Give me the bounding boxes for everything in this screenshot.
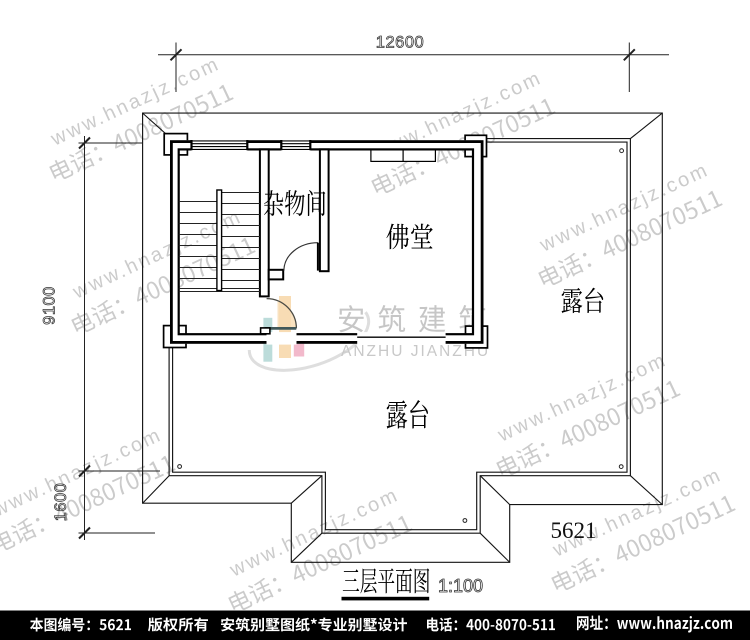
svg-text:5621: 5621	[551, 518, 597, 543]
svg-text:1600: 1600	[52, 483, 70, 522]
svg-text:1:100: 1:100	[438, 576, 483, 596]
svg-text:12600: 12600	[376, 34, 424, 52]
svg-text:9100: 9100	[41, 286, 59, 325]
